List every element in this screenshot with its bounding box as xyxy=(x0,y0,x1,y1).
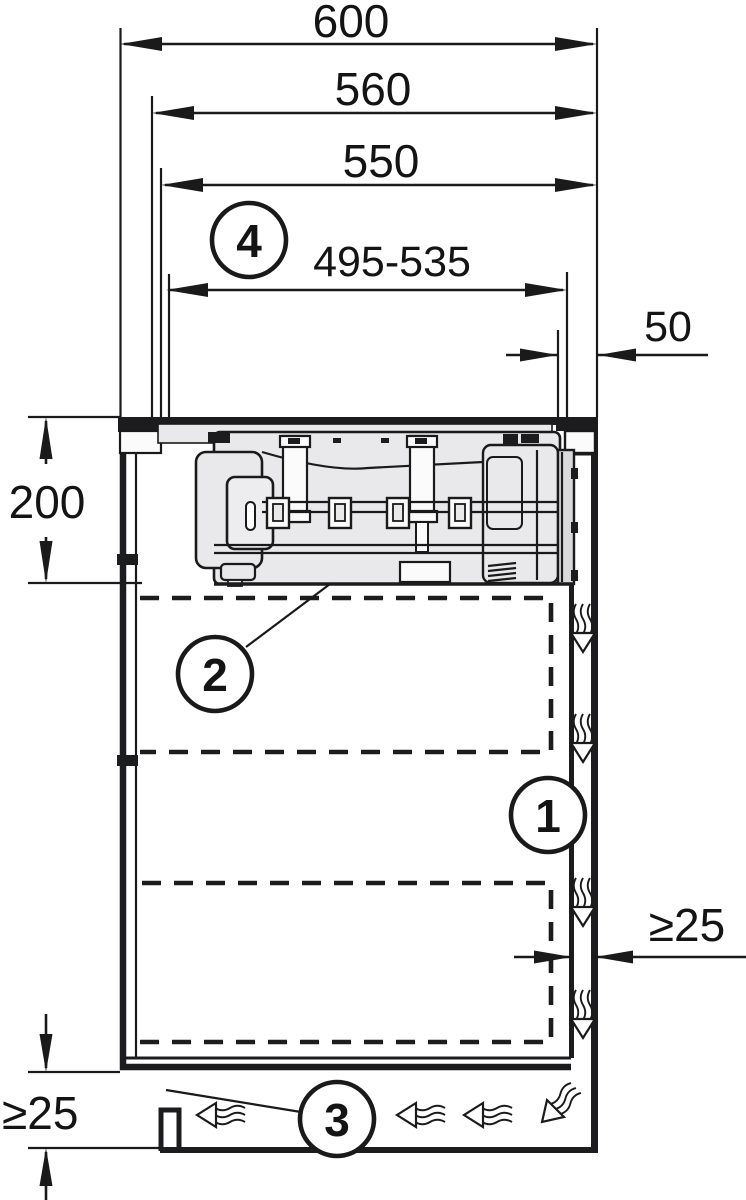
bottom-notch xyxy=(400,562,450,582)
dim-range-label: 495-535 xyxy=(313,238,471,286)
cooktop-unit xyxy=(158,424,578,586)
dim-550-label: 550 xyxy=(343,135,420,187)
dimension-duct-position-range: 495-535 4 xyxy=(166,203,567,297)
dim-plinth-gap-label: ≥25 xyxy=(2,1087,78,1139)
callout-1: 1 xyxy=(511,778,585,852)
cover-slot xyxy=(246,502,255,530)
blower-inner-panel xyxy=(487,457,522,529)
clearance-zone-lower xyxy=(140,883,551,1042)
dim-560-label: 560 xyxy=(335,63,412,115)
left-wall-seam-2 xyxy=(117,755,138,766)
dim-600-label: 600 xyxy=(313,0,390,47)
callout-2: 2 xyxy=(178,584,330,711)
junction-box-foot xyxy=(221,564,255,580)
callout-1-number: 1 xyxy=(535,790,561,842)
left-wall-seam-1 xyxy=(117,554,138,565)
callout-2-number: 2 xyxy=(202,649,228,701)
plinth-deflector xyxy=(161,1110,179,1151)
airflow-left-icon xyxy=(397,1103,445,1127)
diagram-canvas: 600 560 550 495-535 4 50 2 xyxy=(0,0,746,1200)
dim-50-label: 50 xyxy=(644,303,692,351)
callout-3: 3 xyxy=(166,1082,374,1156)
dimension-plinth-air-gap: ≥25 xyxy=(2,1014,120,1200)
dimension-cutout-depth: 560 xyxy=(152,63,597,120)
dimension-rear-offset: 50 xyxy=(506,303,708,362)
dim-rear-gap-label: ≥25 xyxy=(649,899,725,951)
dimension-worktop-depth: 600 xyxy=(120,0,597,51)
airflow-left-icon xyxy=(464,1103,512,1127)
installation-diagram: 600 560 550 495-535 4 50 2 xyxy=(0,0,746,1200)
airflow-turn-icon xyxy=(534,1080,585,1131)
dim-200-label: 200 xyxy=(9,476,86,528)
airflow-left-icon xyxy=(197,1103,245,1127)
callout-3-number: 3 xyxy=(324,1094,350,1146)
dimension-appliance-top-depth: 550 xyxy=(161,135,597,192)
left-top-rail xyxy=(120,431,161,453)
callout-4-number: 4 xyxy=(236,215,262,267)
